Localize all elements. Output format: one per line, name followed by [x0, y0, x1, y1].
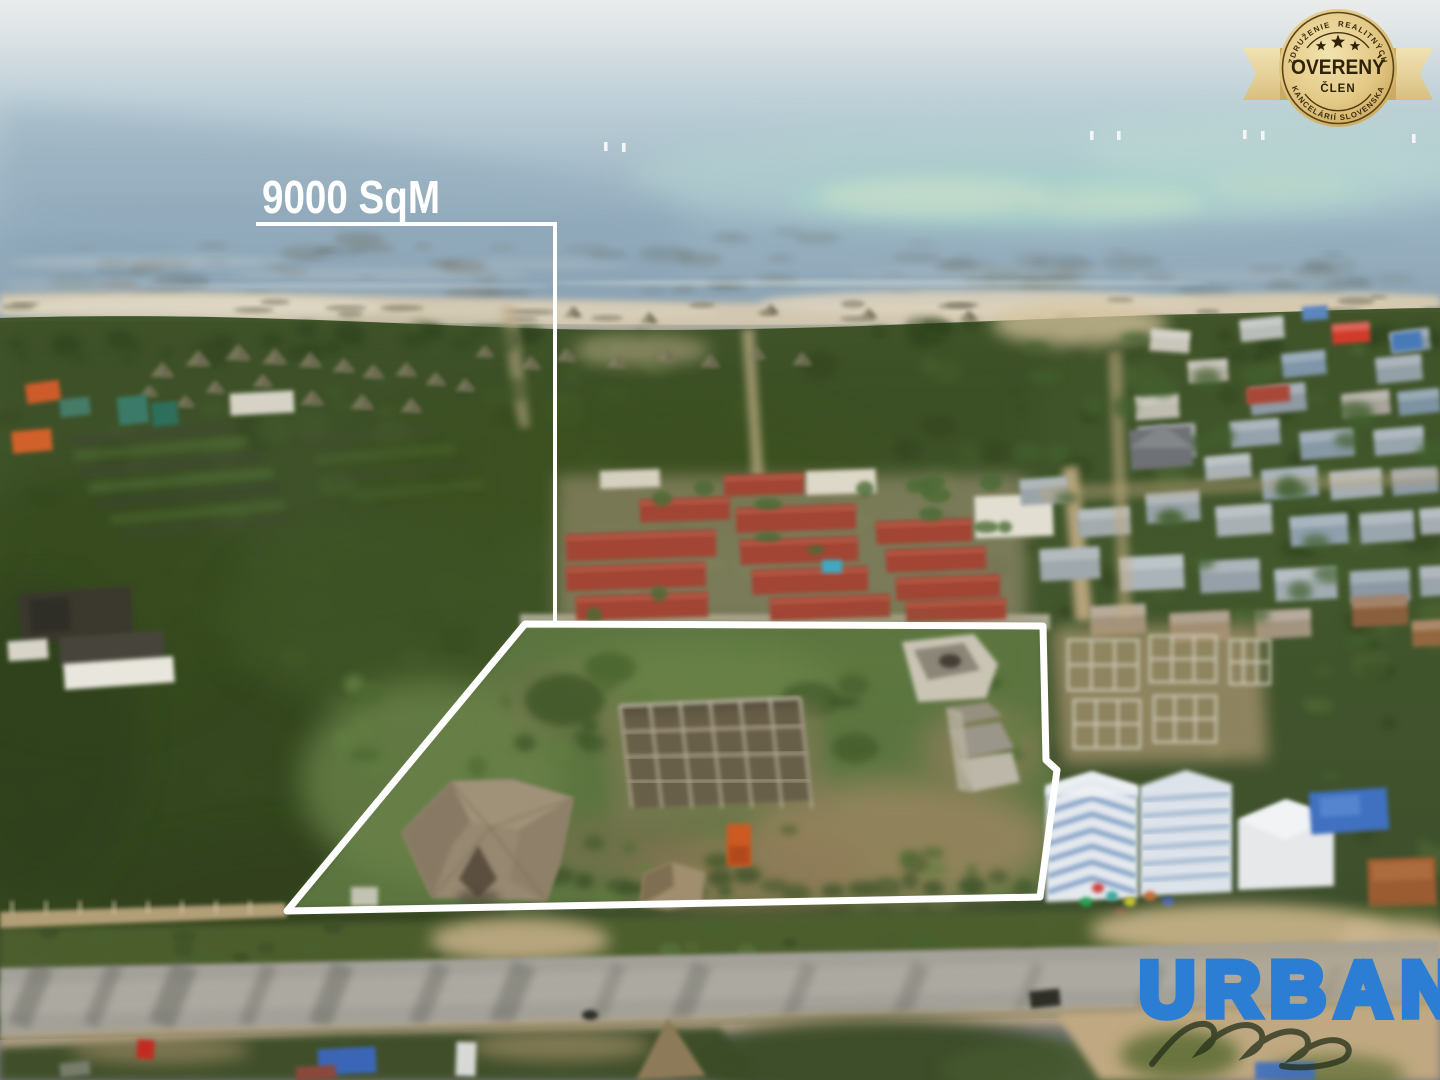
- svg-text:9000 SqM: 9000 SqM: [262, 171, 440, 223]
- svg-text:URBAN: URBAN: [1139, 945, 1440, 1033]
- svg-text:OVERENÝ: OVERENÝ: [1291, 55, 1385, 79]
- svg-text:ČLEN: ČLEN: [1320, 82, 1355, 95]
